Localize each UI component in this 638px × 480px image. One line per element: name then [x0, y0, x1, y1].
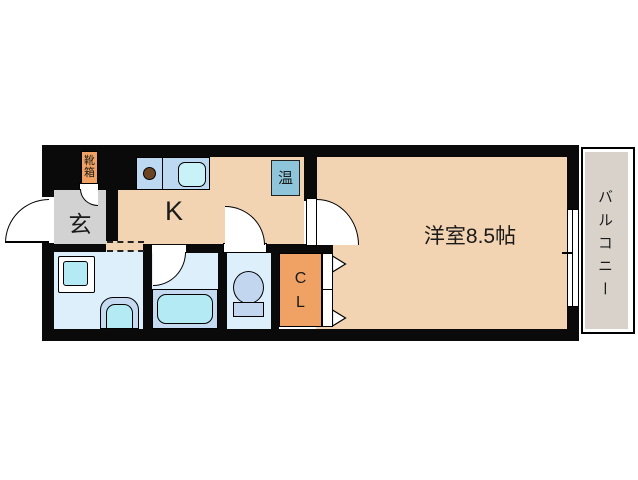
opening-dash-top — [107, 241, 144, 243]
window-tick — [562, 252, 573, 254]
closet-door-arrow-bottom — [332, 309, 347, 327]
wall-bottom — [43, 329, 579, 341]
balcony-label: バルコニー — [597, 176, 612, 316]
washing-machine-inner — [63, 261, 88, 286]
bathtub-panel — [152, 289, 218, 329]
opening-dash-bottom — [107, 250, 144, 252]
entrance-door-arc — [5, 199, 49, 243]
shoe-box: 靴 箱 — [81, 151, 98, 185]
entrance-door-leaf — [5, 241, 49, 243]
window-center-line — [572, 210, 573, 306]
wall-wash-bath — [143, 244, 152, 329]
washing-machine-pan — [58, 256, 95, 293]
wash-basin — [100, 297, 139, 329]
shoe-box-label-1: 靴 — [82, 155, 97, 167]
wall-bath-toilet — [218, 244, 227, 329]
water-heater-box: 温 — [271, 160, 300, 196]
closet-label-1: C — [280, 267, 321, 291]
closet-box: C L — [279, 253, 322, 327]
entrance-label: 玄 — [54, 213, 106, 236]
counter-divider — [162, 158, 163, 189]
kitchen-sink — [178, 162, 206, 187]
wall-left — [42, 145, 54, 341]
kitchen-counter — [136, 157, 210, 190]
floorplan-canvas: 靴 箱 温 C L — [0, 0, 638, 480]
bathtub — [157, 294, 213, 324]
wall-entrance-right — [106, 150, 118, 241]
wall-entrance-bottom — [45, 244, 106, 252]
room-door-leaf — [306, 198, 317, 246]
toilet-bowl — [233, 271, 264, 304]
western-room-label: 洋室8.5帖 — [380, 226, 560, 247]
window — [567, 209, 579, 307]
kitchen-label: K — [144, 198, 204, 225]
closet-door-divider — [323, 289, 332, 290]
wall-kitchen-room — [304, 145, 317, 201]
wash-basin-bowl — [106, 304, 133, 329]
closet-door-arrow-top — [332, 255, 347, 273]
shoe-box-label-2: 箱 — [82, 167, 97, 179]
stove-burner-icon — [143, 167, 156, 180]
toilet-tank — [233, 302, 264, 317]
water-heater-label: 温 — [272, 171, 299, 186]
wall-toilet-closet — [271, 244, 279, 329]
closet-label-2: L — [280, 291, 321, 315]
